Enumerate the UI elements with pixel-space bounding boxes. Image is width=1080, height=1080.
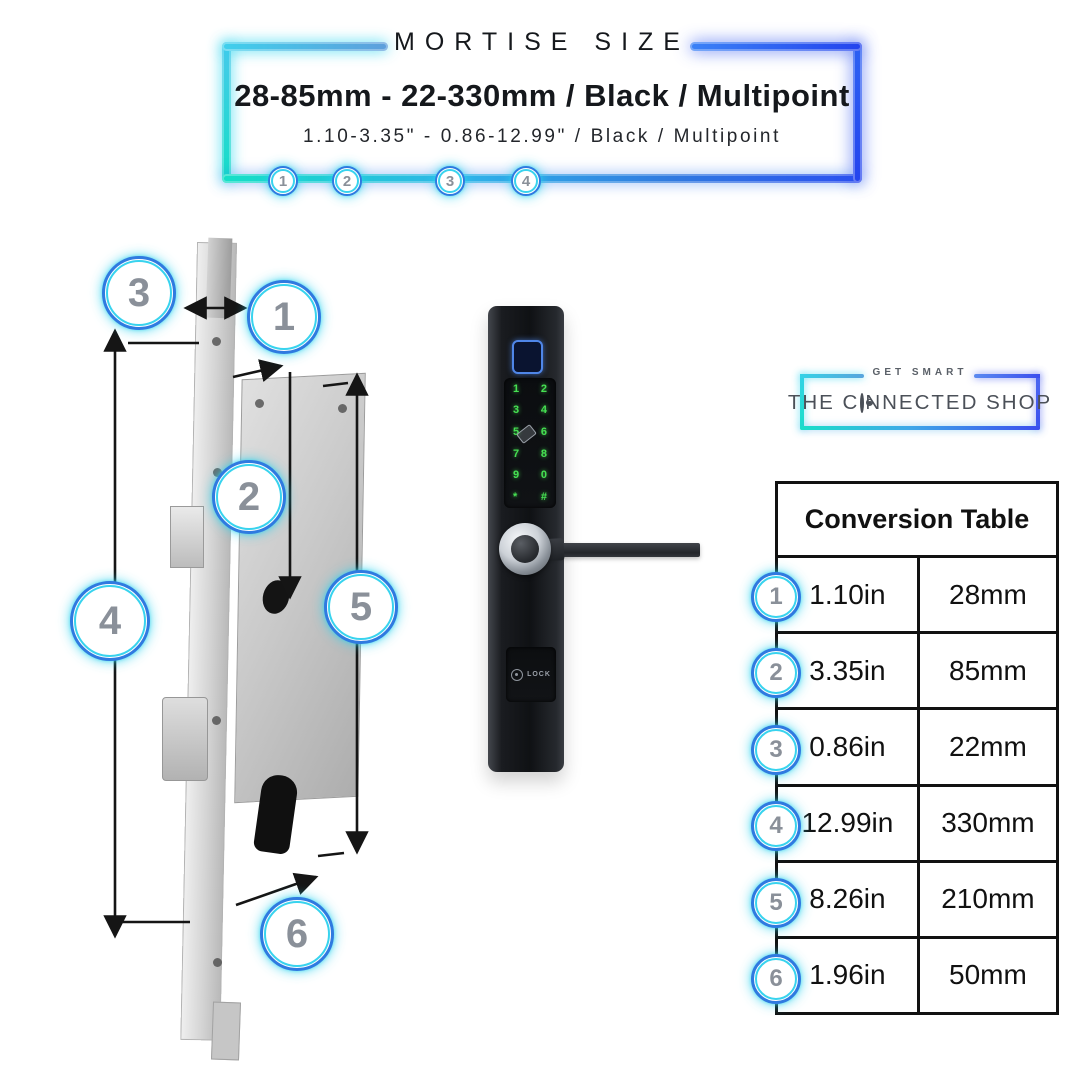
table-row-badge-2: 2 (751, 648, 801, 698)
table-row: 1.96in 50mm (778, 939, 1056, 1012)
page-title: MORTISE SIZE (394, 28, 690, 57)
keypad-digit: 8 (541, 448, 547, 460)
keypad-digit: 0 (541, 469, 547, 481)
latch-bolt (170, 506, 204, 568)
brand-suffix: NNECTED SHOP (865, 391, 1052, 415)
screw-icon (212, 716, 221, 725)
table-row-badge-5: 5 (751, 878, 801, 928)
table-row-badge-6: 6 (751, 954, 801, 1004)
table-row: 0.86in 22mm (778, 710, 1056, 786)
screw-icon (338, 404, 347, 413)
hero-frame-topright-bar (690, 42, 862, 51)
infographic-canvas: MORTISE SIZE 28-85mm - 22-330mm / Black … (0, 0, 1080, 1080)
callout-4: 4 (70, 581, 150, 661)
keypad-digit: 4 (541, 404, 547, 416)
cell-mm: 50mm (920, 939, 1056, 1012)
fingerprint-icon (512, 340, 543, 374)
lock-faceplate (180, 242, 237, 1041)
screw-icon (213, 958, 222, 967)
callout-2: 2 (212, 460, 286, 534)
keypad-digit: 3 (513, 404, 519, 416)
table-row-badge-1: 1 (751, 572, 801, 622)
keypad-digit: 2 (541, 383, 547, 395)
header-marker-1: 1 (268, 166, 298, 196)
cell-mm: 85mm (920, 634, 1056, 707)
brand-logo: GET SMART THE C NNECTED SHOP (800, 374, 1040, 430)
cell-mm: 210mm (920, 863, 1056, 936)
logo-frame-topright-bar (974, 374, 1040, 378)
table-row: 12.99in 330mm (778, 787, 1056, 863)
keypad-digit: 1 (513, 383, 519, 395)
callout-6: 6 (260, 897, 334, 971)
hook-bolt (162, 697, 208, 781)
logo-frame-bottom-bar (800, 426, 1040, 430)
callout-1: 1 (247, 280, 321, 354)
hero-frame: MORTISE SIZE 28-85mm - 22-330mm / Black … (222, 42, 862, 183)
keypad-digit: 6 (541, 426, 547, 438)
logo-frame-topleft-bar (800, 374, 864, 378)
header-marker-2: 2 (332, 166, 362, 196)
bottom-bolt (211, 1002, 241, 1061)
callout-3: 3 (102, 256, 176, 330)
table-row: 8.26in 210mm (778, 863, 1056, 939)
lock-brand-icon (511, 669, 523, 681)
screw-icon (255, 399, 264, 408)
logo-tagline: GET SMART (873, 367, 968, 378)
table-row-badge-4: 4 (751, 801, 801, 851)
conversion-table: Conversion Table 1.10in 28mm 3.35in 85mm… (775, 481, 1059, 1015)
table-row: 3.35in 85mm (778, 634, 1056, 710)
handle-hub-core (511, 535, 539, 563)
screw-icon (212, 337, 221, 346)
table-row: 1.10in 28mm (778, 558, 1056, 634)
lock-panel: LOCK (506, 647, 556, 702)
table-title: Conversion Table (778, 484, 1056, 558)
callout-5: 5 (324, 570, 398, 644)
header-marker-4: 4 (511, 166, 541, 196)
header-marker-3: 3 (435, 166, 465, 196)
brand-name: THE C NNECTED SHOP (800, 391, 1040, 415)
cell-mm: 28mm (920, 558, 1056, 631)
lock-top-bolt (206, 238, 233, 319)
cell-mm: 330mm (920, 787, 1056, 860)
table-row-badge-3: 3 (751, 725, 801, 775)
keypad-digit: # (541, 491, 547, 503)
cell-mm: 22mm (920, 710, 1056, 783)
keypad-digit: * (513, 491, 517, 503)
connected-o-icon (860, 393, 864, 413)
keypad-digit: 9 (513, 469, 519, 481)
size-subheadline-inches: 1.10-3.35" - 0.86-12.99" / Black / Multi… (222, 126, 862, 148)
size-headline-mm: 28-85mm - 22-330mm / Black / Multipoint (222, 78, 862, 114)
brand-prefix: THE C (788, 391, 860, 415)
keypad: 12 34 56 78 90 *# (504, 378, 556, 508)
keypad-digit: 7 (513, 448, 519, 460)
lock-panel-label: LOCK (527, 671, 551, 678)
hero-frame-bottom-bar (222, 174, 862, 183)
hero-frame-topleft-bar (222, 42, 388, 51)
